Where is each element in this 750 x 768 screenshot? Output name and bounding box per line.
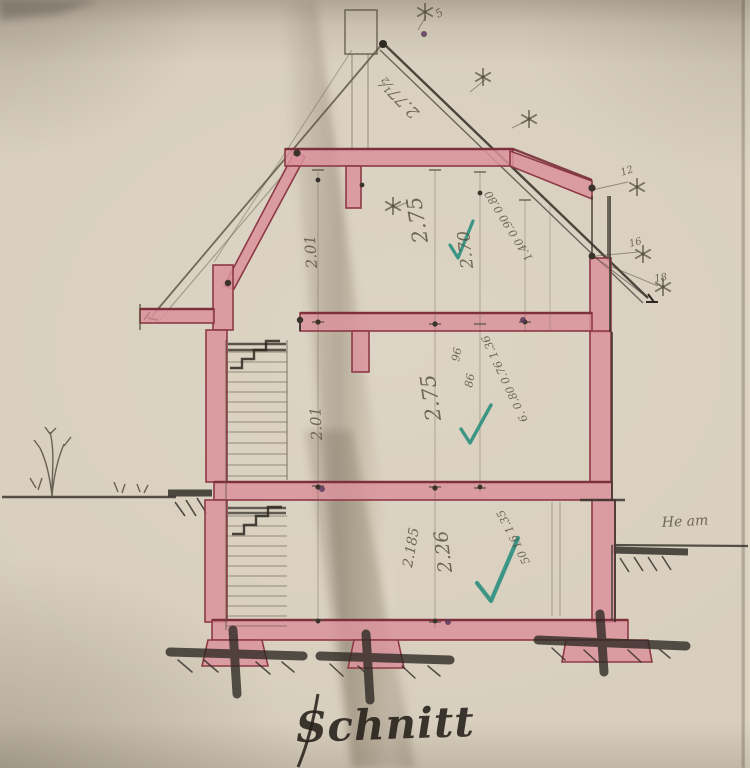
right-wall-middle [590,331,611,482]
green-checkmarks [450,221,518,601]
chimney-attic [346,166,361,208]
annotation-mid-small-dim-a: 96 [449,346,464,362]
star-mark [417,3,433,21]
stair-upper-flight [226,352,287,476]
ink-dot [421,31,427,37]
annotation-right-mark-b: 16 [628,236,644,250]
annotation-right-mark-c: 18 [654,272,668,285]
annotation-ground-left-dim: 2.185 [400,526,423,569]
photographed-plan-sheet: 2.77½2.012.752.701.40 0.90 0.802.012.759… [0,0,750,768]
annotation-mid-left-height: 2.01 [306,406,326,441]
star-mark [521,110,537,128]
middle-ceiling-slab [300,313,592,331]
chimney-top [345,10,377,54]
star-mark [475,68,491,86]
annotation-ground-right-chain: 50 16 1.35 [494,508,533,567]
left-wall-ground [205,500,227,622]
lower-ceiling-slab [214,482,612,500]
star-mark [629,178,645,196]
annotation-terrain-note: He am [660,513,708,531]
left-eave-soffit [140,309,214,323]
plant-sketch [30,427,148,496]
annotation-right-mark-a: 12 [619,164,635,179]
ink-dot [445,619,451,625]
annotation-ground-main-height: 2.26 [430,529,457,575]
checkmark [461,405,491,443]
annotation-mid-small-dim-b: 86 [462,372,477,388]
left-knee-wall [213,265,233,330]
annotation-roof-slope-dim: 2.77½ [374,72,424,123]
drawing-title: Schnitt [295,697,475,752]
annotation-attic-main-height: 2.75 [402,195,433,246]
attic-ceiling-slab [285,149,513,166]
annotation-peak-mark: 5 [433,6,446,21]
right-attic-wall [590,258,611,332]
chimney-middle [352,331,369,372]
annotation-attic-left-height: 2.01 [301,234,321,270]
left-wall-middle [206,330,227,482]
ink-dot [319,486,325,492]
left-roof-band [224,151,305,289]
section-drawing: 2.77½2.012.752.701.40 0.90 0.802.012.759… [0,0,750,768]
stair-lower-flight [226,516,287,626]
annotation-mid-main-height: 2.75 [416,373,446,424]
ground-hatch-right [613,550,688,572]
annotation-attic-clear-height: 2.70 [454,230,478,271]
ink-dot [520,317,526,323]
